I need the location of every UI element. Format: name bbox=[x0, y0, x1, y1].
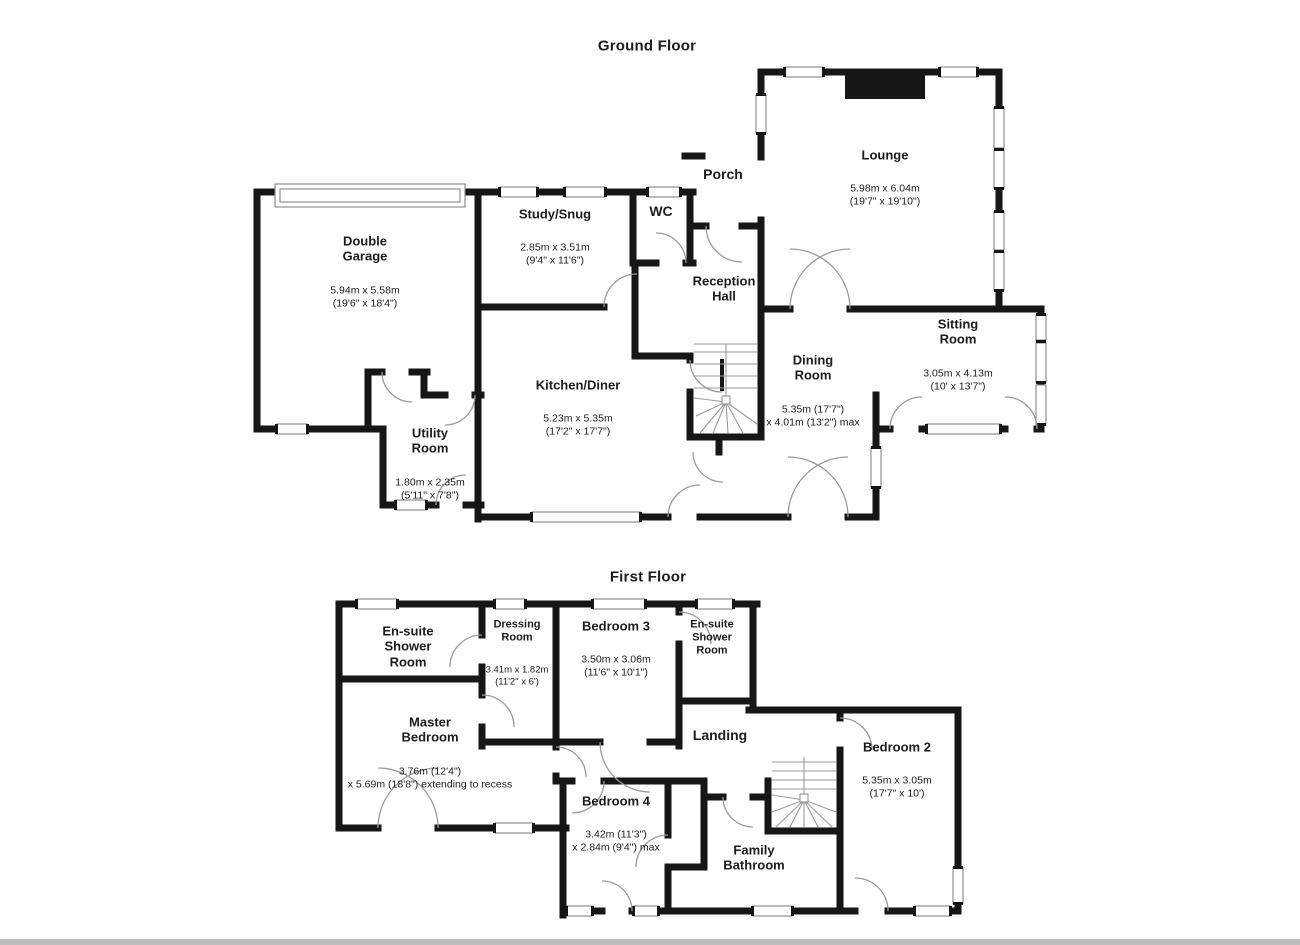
garage-door bbox=[275, 184, 465, 207]
room-label-landing: Landing bbox=[693, 707, 747, 763]
ground-floor-staircase bbox=[694, 344, 757, 433]
room-name: Utility Room bbox=[395, 425, 464, 457]
room-label-ensuite-shower-room-2: En-suite Shower Room bbox=[690, 598, 733, 677]
room-name: Dining Room bbox=[766, 352, 859, 384]
room-label-reception-hall: Reception Hall bbox=[693, 254, 756, 325]
room-name: Sitting Room bbox=[923, 316, 992, 348]
room-dims: 3.50m x 3.06m (11'6" x 10'1") bbox=[581, 654, 650, 680]
room-dims: 3.76m (12'4") x 5.69m (18'8") extending … bbox=[348, 765, 512, 791]
room-dims: 5.94m x 5.58m (19'6" x 18'4") bbox=[330, 284, 399, 310]
room-label-wc: WC bbox=[649, 183, 672, 239]
room-name: En-suite Shower Room bbox=[690, 618, 733, 658]
room-dims: 5.35m x 3.05m (17'7" x 10') bbox=[862, 775, 931, 801]
room-dims: 1.80m x 2.35m (5'11" x 7'8") bbox=[395, 476, 464, 502]
room-name: Family Bathroom bbox=[723, 842, 784, 874]
chimney-breast bbox=[845, 72, 925, 99]
room-name: Bedroom 2 bbox=[862, 739, 931, 755]
room-label-dressing-room: Dressing Room 3.41m x 1.82m (11'2" x 6') bbox=[486, 598, 549, 707]
room-dims: 3.42m (11'3") x 2.84m (9'4") max bbox=[572, 829, 659, 855]
room-dims: 5.23m x 5.35m (17'2" x 17'7") bbox=[536, 413, 621, 439]
room-label-master-bedroom: Master Bedroom 3.76m (12'4") x 5.69m (18… bbox=[348, 695, 512, 812]
room-dims: 2.85m x 3.51m (9'4" x 11'6") bbox=[519, 242, 591, 268]
room-name: Dressing Room bbox=[486, 618, 549, 645]
room-name: Lounge bbox=[850, 147, 920, 163]
room-dims: 5.98m x 6.04m (19'7" x 19'10") bbox=[850, 183, 920, 209]
room-name: WC bbox=[649, 202, 672, 219]
first-floor-staircase bbox=[772, 757, 836, 827]
room-name: En-suite Shower Room bbox=[382, 623, 433, 671]
room-label-ensuite-shower-room-1: En-suite Shower Room bbox=[382, 604, 433, 691]
room-name: Landing bbox=[693, 726, 747, 743]
room-dims: 3.05m x 4.13m (10' x 13'7") bbox=[923, 367, 992, 393]
room-label-bedroom-2: Bedroom 2 5.35m x 3.05m (17'7" x 10') bbox=[862, 720, 931, 821]
room-label-family-bathroom: Family Bathroom bbox=[723, 823, 784, 894]
room-label-dining-room: Dining Room 5.35m (17'7") x 4.01m (13'2"… bbox=[766, 333, 859, 450]
room-label-study-snug: Study/Snug 2.85m x 3.51m (9'4" x 11'6") bbox=[519, 187, 591, 288]
room-name: Study/Snug bbox=[519, 206, 591, 222]
room-name: Kitchen/Diner bbox=[536, 377, 621, 393]
room-dims: 5.35m (17'7") x 4.01m (13'2") max bbox=[766, 403, 859, 429]
room-label-kitchen-diner: Kitchen/Diner 5.23m x 5.35m (17'2" x 17'… bbox=[536, 358, 621, 459]
room-label-bedroom-4: Bedroom 4 3.42m (11'3") x 2.84m (9'4") m… bbox=[572, 774, 659, 875]
room-name: Bedroom 4 bbox=[572, 793, 659, 809]
floorplan-page: { "document_type": "Floorplan", "colors"… bbox=[0, 0, 1300, 945]
floor-title-ground: Ground Floor bbox=[598, 38, 696, 55]
room-name: Double Garage bbox=[330, 233, 399, 265]
room-name: Bedroom 3 bbox=[581, 618, 650, 634]
room-label-bedroom-3: Bedroom 3 3.50m x 3.06m (11'6" x 10'1") bbox=[581, 599, 650, 700]
room-dims: 3.41m x 1.82m (11'2" x 6') bbox=[486, 664, 549, 688]
room-name: Master Bedroom bbox=[348, 714, 512, 746]
floor-title-first: First Floor bbox=[610, 569, 686, 586]
scan-edge bbox=[0, 939, 1300, 945]
room-label-double-garage: Double Garage 5.94m x 5.58m (19'6" x 18'… bbox=[330, 214, 399, 331]
room-label-sitting-room: Sitting Room 3.05m x 4.13m (10' x 13'7") bbox=[923, 297, 992, 414]
room-name: Reception Hall bbox=[693, 273, 756, 305]
room-label-lounge: Lounge 5.98m x 6.04m (19'7" x 19'10") bbox=[850, 128, 920, 229]
room-name: Porch bbox=[703, 165, 743, 182]
room-label-porch: Porch bbox=[703, 146, 743, 202]
room-label-utility-room: Utility Room 1.80m x 2.35m (5'11" x 7'8"… bbox=[395, 406, 464, 523]
